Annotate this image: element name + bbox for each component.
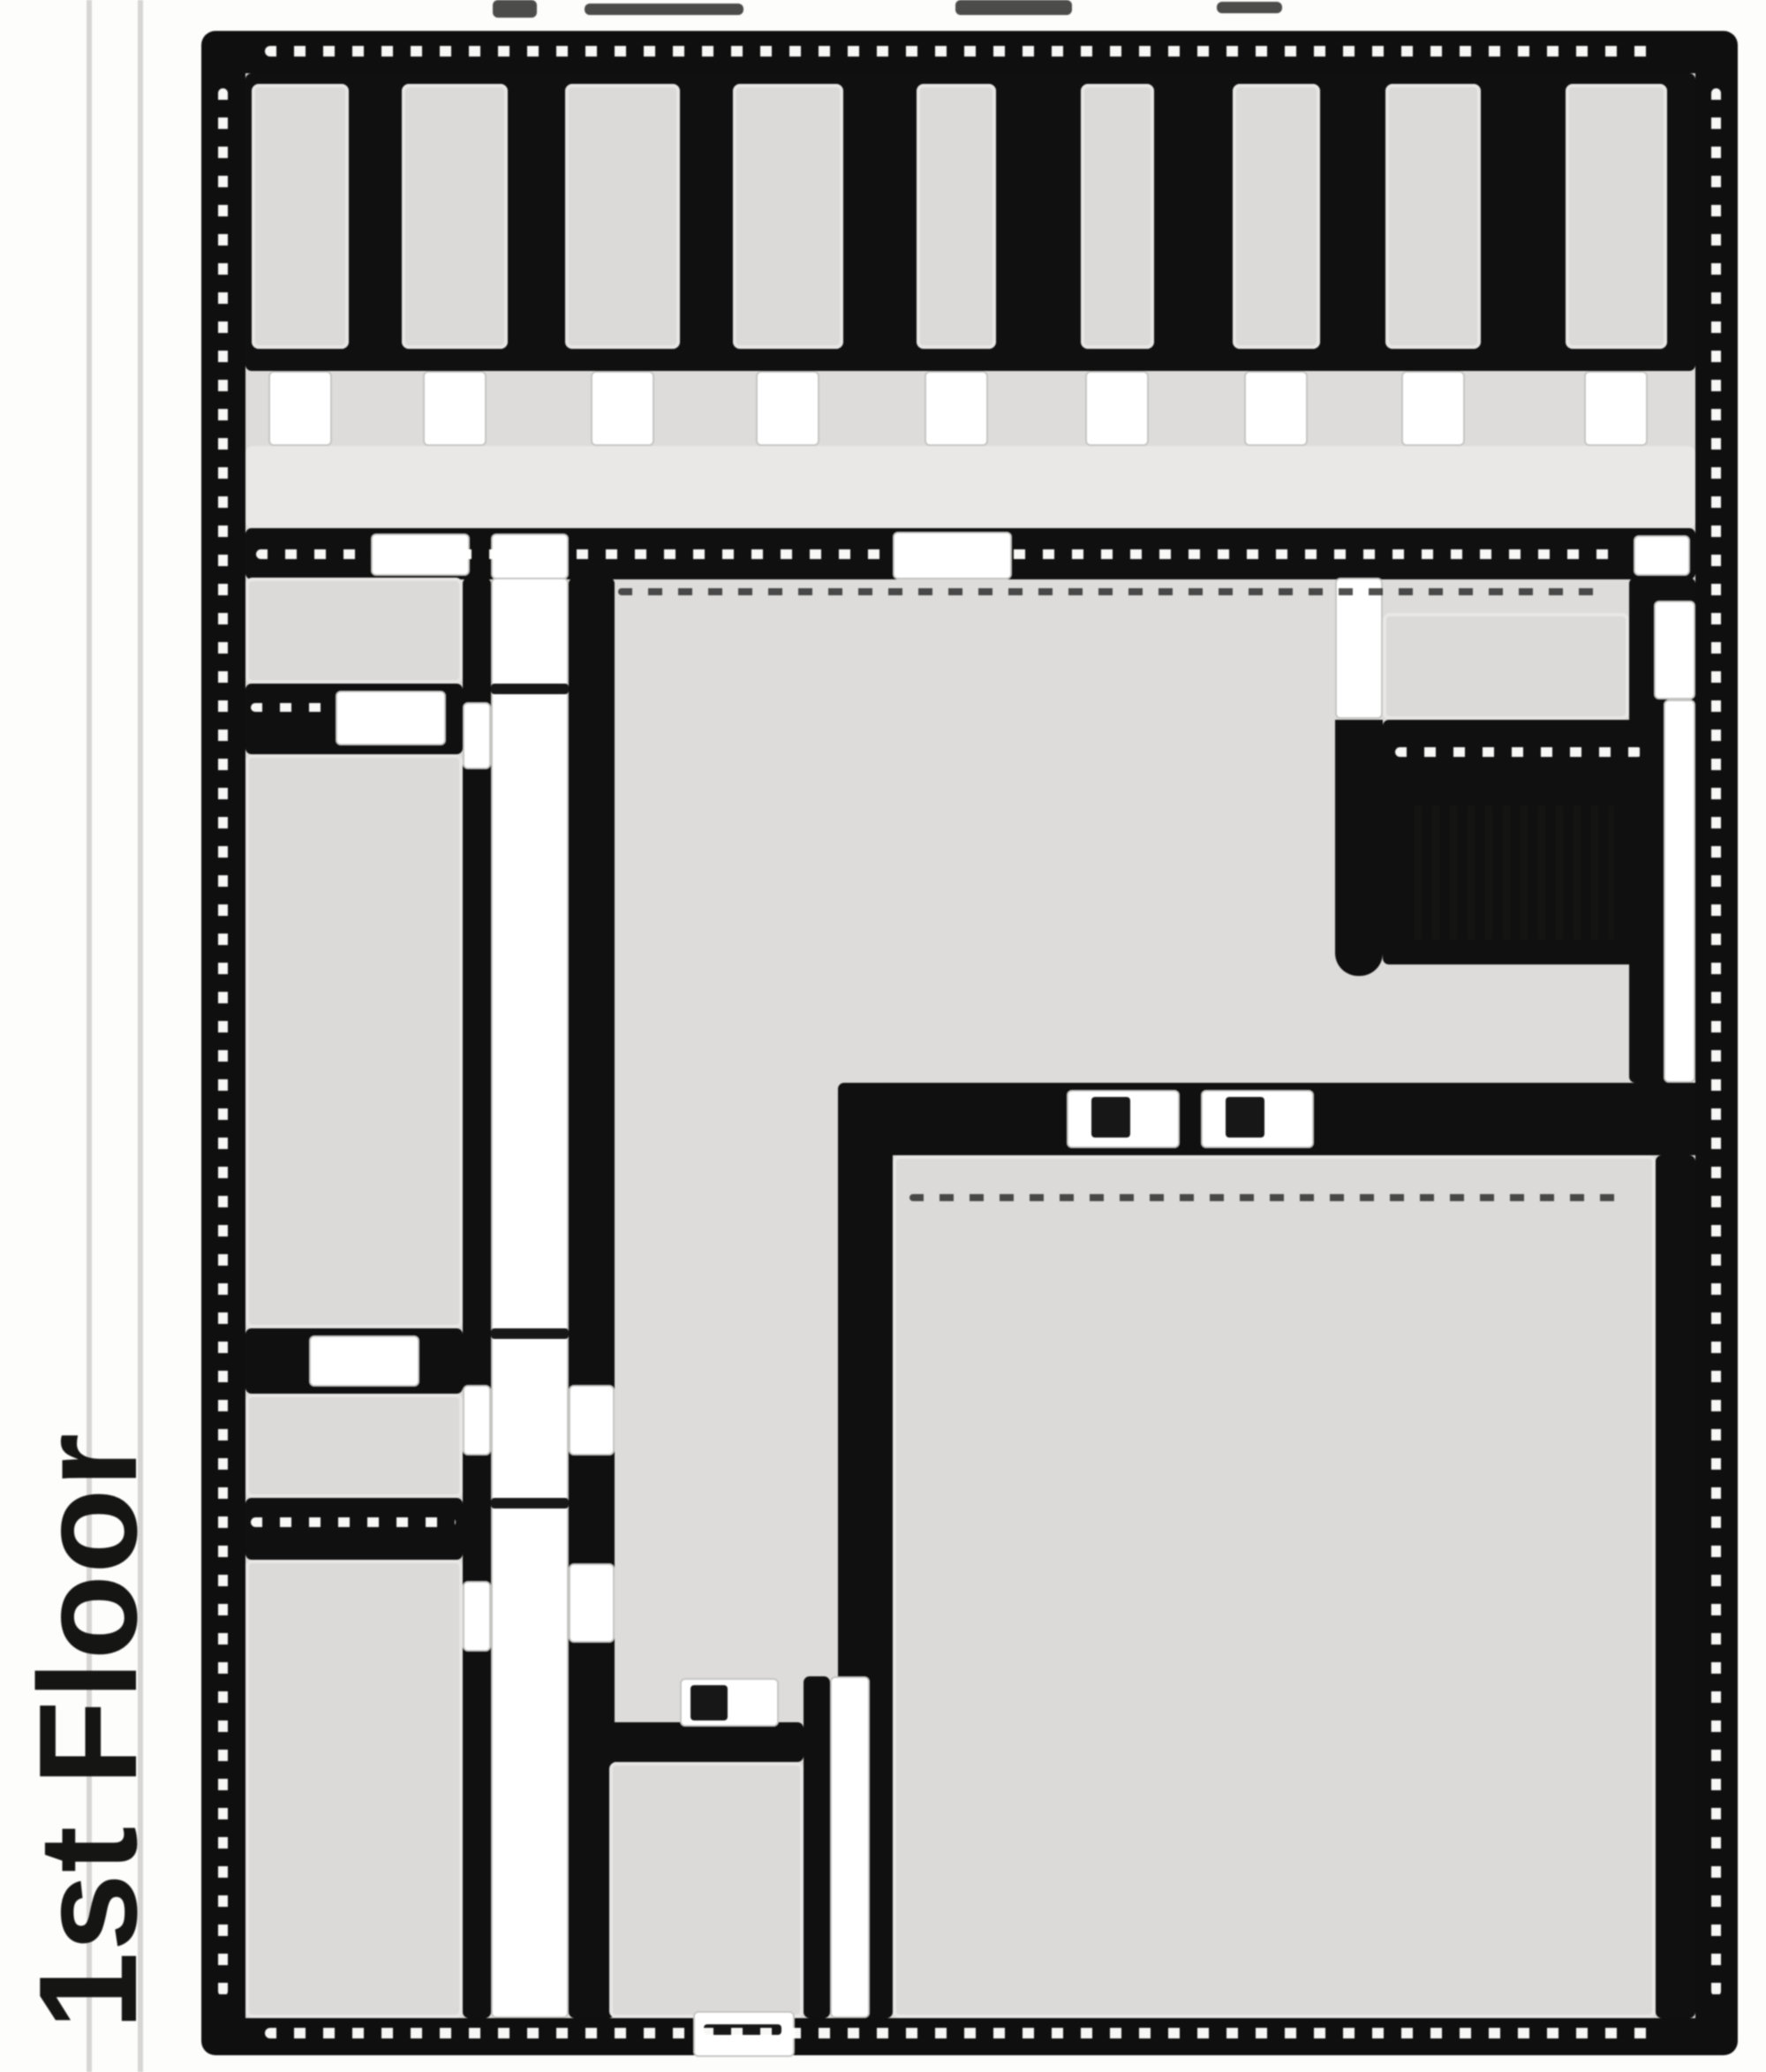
spine-wall-west: [463, 578, 491, 2018]
spine-west-gap-b: [463, 1385, 491, 1456]
spine-junction-tick-3: [491, 1498, 569, 1509]
corridor-door-right: [1634, 535, 1690, 576]
room-bottom-center: [609, 1762, 804, 2018]
divider-c-stipple: [251, 1517, 456, 1527]
cell-4: [733, 84, 843, 349]
floorplan-drawing: 1st Floor: [0, 0, 1766, 2072]
bottomroom-north-wall: [609, 1722, 804, 1762]
scan-smudge-4: [1217, 2, 1282, 13]
bottom-passage: [830, 1676, 870, 2018]
spine-wall-east: [569, 578, 615, 2018]
spine-junction-tick-2: [491, 1328, 569, 1339]
right-shaft-slot: [1664, 699, 1695, 1083]
cell-3-door: [591, 371, 654, 446]
cell-7: [1233, 84, 1320, 349]
room-left-a: [245, 578, 463, 684]
topright-room-east-door: [1654, 601, 1695, 699]
bigroom-edge-dashes: [909, 1194, 1630, 1201]
cell-1: [252, 84, 349, 349]
cell-2: [402, 84, 508, 349]
cell-6-door: [1085, 371, 1149, 446]
topright-room-west-door: [1335, 578, 1383, 719]
spine-west-gap-c: [463, 1581, 491, 1652]
room-left-d-tall: [245, 1560, 463, 2018]
cell-2-door: [423, 371, 487, 446]
left-divider-a-door: [336, 691, 446, 745]
bottomroom-east-wall: [804, 1676, 830, 2018]
cell-9: [1566, 84, 1667, 349]
left-wall-stipple: [218, 88, 228, 1996]
bottomroom-door-leaf: [691, 1685, 728, 1720]
cell-5: [917, 84, 996, 349]
staircase-treads-icon: [1415, 805, 1614, 940]
bottom-wall-stipple: [265, 2028, 1660, 2038]
bigroom-door-leaf-east: [1226, 1097, 1264, 1138]
room-left-c: [245, 1394, 463, 1498]
spine-east-gap-b: [569, 1563, 615, 1643]
cell-6: [1081, 84, 1154, 349]
cell-9-door: [1584, 371, 1648, 446]
top-wall-stipple: [265, 46, 1660, 57]
stair-stub-wall: [1335, 720, 1383, 976]
spine-corridor: [491, 578, 569, 2018]
cell-3: [565, 84, 680, 349]
left-divider-c: [245, 1498, 463, 1560]
cell-1-door: [268, 371, 332, 446]
floor-label: 1st Floor: [19, 1387, 158, 2072]
scan-smudge-2: [585, 4, 743, 15]
left-divider-b-door: [309, 1335, 419, 1387]
spine-junction-tick-1: [491, 684, 569, 694]
divider-a-stipple: [251, 703, 330, 712]
hall-edge-dashes: [618, 588, 1607, 595]
scan-smudge-1: [493, 0, 537, 18]
right-wall-stipple: [1711, 88, 1721, 1996]
cell-8: [1385, 84, 1481, 349]
scan-smudge-3: [955, 0, 1072, 15]
stair-wall-stipple: [1395, 747, 1642, 757]
spine-west-gap-a: [463, 702, 491, 769]
bigroom-east-wall: [1656, 1155, 1695, 2018]
main-corridor: [245, 446, 1695, 528]
scanned-floorplan-page: 1st Floor: [0, 0, 1766, 2072]
cell-4-door: [756, 371, 819, 446]
room-large-southeast: [893, 1155, 1656, 2018]
room-top-right: [1383, 613, 1629, 720]
room-left-b-tall: [245, 754, 463, 1328]
cell-8-door: [1401, 371, 1465, 446]
bigroom-door-leaf-west: [1091, 1097, 1130, 1138]
cell-5-door: [925, 371, 988, 446]
spine-east-gap-a: [569, 1385, 615, 1456]
cell-7-door: [1244, 371, 1308, 446]
corridor-wall-stipple: [256, 549, 1616, 559]
